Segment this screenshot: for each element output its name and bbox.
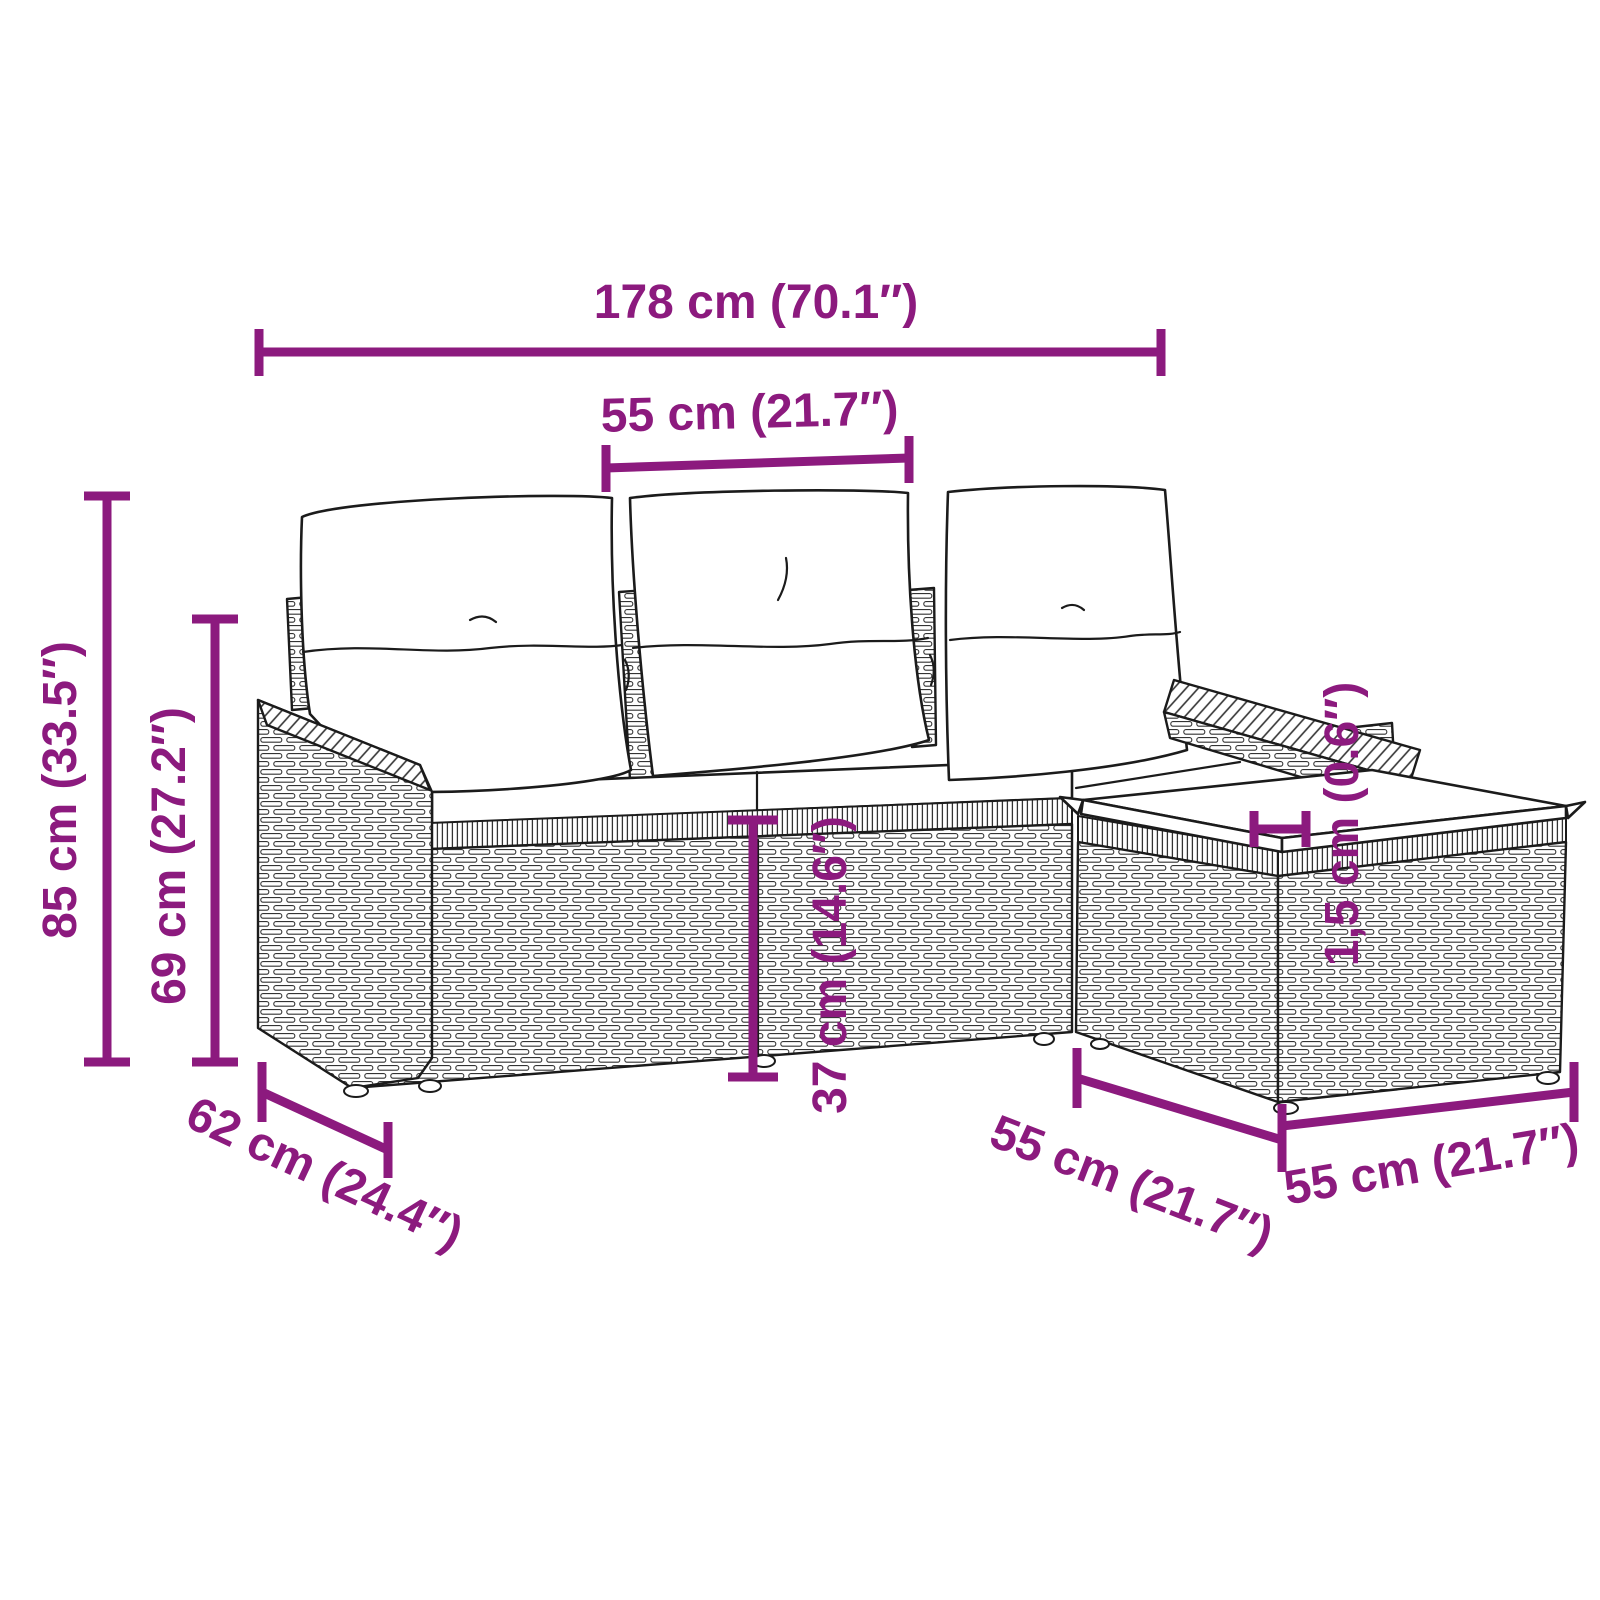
dim-total-height [84, 496, 130, 1062]
sofa-foot [344, 1085, 368, 1097]
left-armrest [258, 700, 432, 1097]
sofa-illustration [258, 486, 1585, 1114]
stool-foot [1537, 1072, 1559, 1084]
dim-total-width [259, 329, 1161, 376]
dim-label-stool-width: 55 cm (21.7″) [1280, 1114, 1582, 1215]
dim-label-depth: 62 cm (24.4″) [178, 1087, 470, 1261]
sofa-base [352, 798, 1072, 1092]
stool-face-left [1076, 842, 1278, 1102]
dim-label-cushion-thickness: 1,5 cm (0.6″) [1316, 682, 1369, 966]
dim-seat-width [606, 436, 909, 492]
back-cushion-3 [946, 486, 1187, 780]
back-cushions [301, 486, 1187, 792]
sofa-base-panel [352, 824, 1072, 1088]
diagram-canvas: 178 cm (70.1″) 55 cm (21.7″) 85 cm (33.5… [0, 0, 1600, 1600]
dim-label-back-height: 69 cm (27.2″) [143, 707, 196, 1005]
dim-label-seat-width: 55 cm (21.7″) [600, 382, 899, 443]
dim-back-height [192, 619, 238, 1062]
dimension-diagram: 178 cm (70.1″) 55 cm (21.7″) 85 cm (33.5… [0, 0, 1600, 1600]
back-cushion-2 [630, 490, 929, 776]
dim-label-seat-height: 37 cm (14.6″) [804, 816, 857, 1114]
sofa-foot [419, 1080, 441, 1092]
stool-cushion-tip-right [1566, 802, 1585, 818]
stool-foot [1091, 1039, 1109, 1049]
dim-label-total-height: 85 cm (33.5″) [34, 641, 87, 939]
dim-label-total-width: 178 cm (70.1″) [594, 276, 919, 329]
sofa-foot [1034, 1033, 1054, 1045]
